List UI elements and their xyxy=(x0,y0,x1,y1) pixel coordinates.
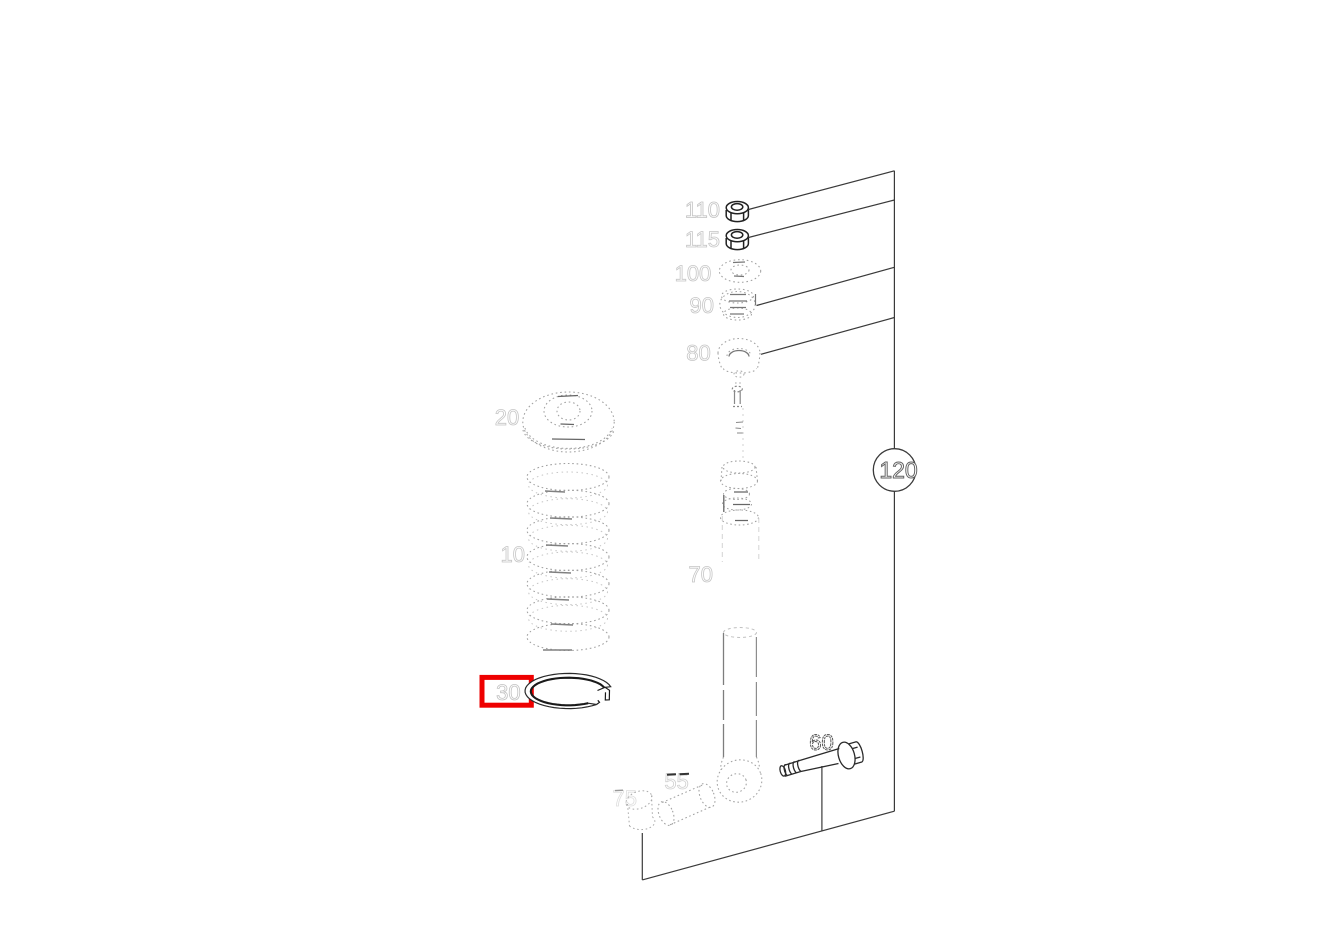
svg-text:110: 110 xyxy=(685,198,720,223)
svg-text:115: 115 xyxy=(685,227,720,252)
svg-text:75: 75 xyxy=(613,786,637,811)
svg-text:55: 55 xyxy=(664,769,688,794)
svg-text:80: 80 xyxy=(686,340,710,365)
svg-text:30: 30 xyxy=(496,680,520,705)
svg-text:20: 20 xyxy=(495,405,519,430)
svg-text:10: 10 xyxy=(501,542,525,567)
svg-text:70: 70 xyxy=(689,562,713,587)
svg-text:100: 100 xyxy=(675,261,712,286)
svg-text:90: 90 xyxy=(690,293,714,318)
svg-text:120: 120 xyxy=(879,457,917,483)
